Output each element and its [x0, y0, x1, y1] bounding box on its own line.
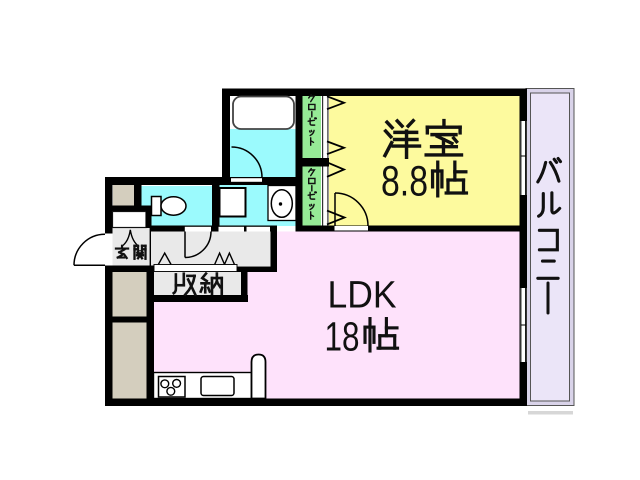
svg-text:18: 18 [325, 314, 360, 360]
svg-text:LDK: LDK [328, 275, 397, 317]
svg-text:8.8: 8.8 [381, 158, 428, 206]
